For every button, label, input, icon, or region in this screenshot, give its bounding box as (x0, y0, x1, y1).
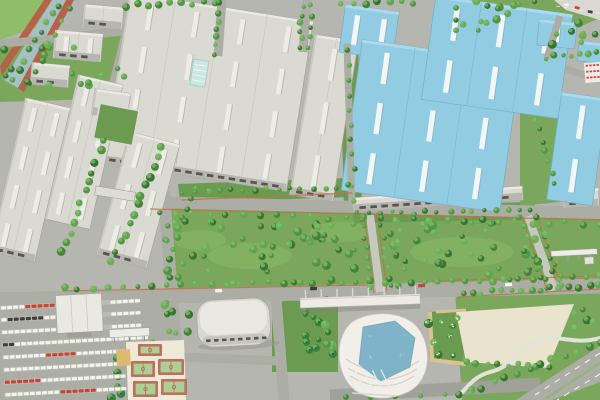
photo-tone-overlay (0, 0, 600, 400)
industrial-park-scale-model-photo: Aerial photograph of an architectural sc… (0, 0, 600, 400)
aerial-model-scene (0, 0, 600, 400)
